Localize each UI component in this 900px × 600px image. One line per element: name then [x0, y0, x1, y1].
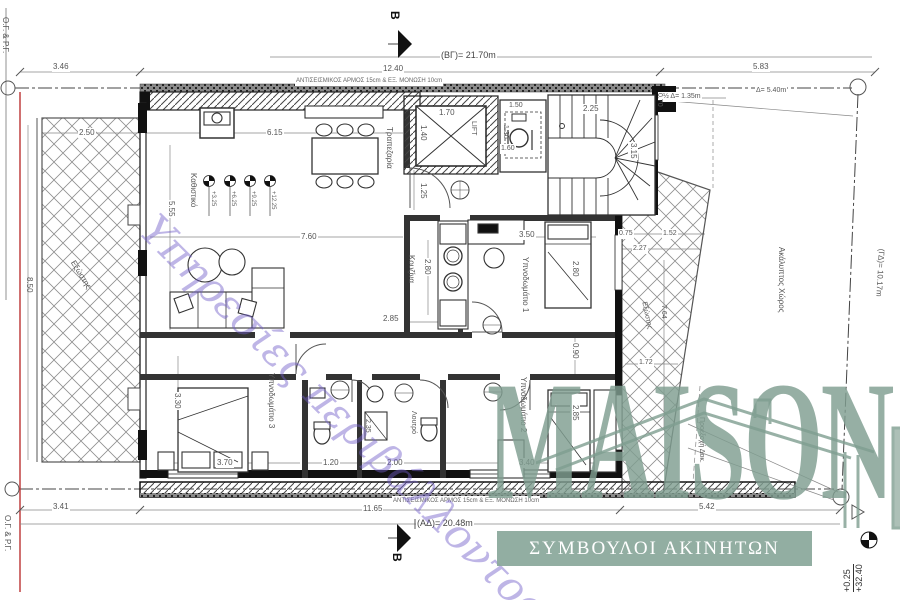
- label-uncovered-space: Ακάλυπτος Χώρος: [776, 246, 786, 314]
- staircase: [548, 95, 655, 215]
- dim-delta-540: Δ= 5.40m: [755, 86, 787, 96]
- boundary-label-og-rg-top: Ο.Γ. & Ρ.Γ.: [0, 16, 10, 54]
- floorplan-stage: Ο.Γ. & Ρ.Γ. 3.46 Β (ΒΓ)= 21.70m 12.40 ΑΝ…: [0, 0, 900, 600]
- dim-lift-w: 1.70: [438, 108, 456, 118]
- benchmark-level-absolute: +32.40: [854, 564, 865, 592]
- dim-bed1-h: 2.80: [570, 260, 580, 278]
- dim-top-c: 5.83: [752, 62, 770, 72]
- dim-kitchen-d: 2.80: [422, 258, 432, 276]
- room-label-dining: Τραπεζαρία: [384, 126, 394, 170]
- dim-wc-d: 1.60: [500, 144, 516, 154]
- dim-bottom-b: 11.65: [362, 504, 383, 514]
- dim-wc-h: 1.30: [500, 124, 510, 140]
- room-label-bath: Λουτρό: [408, 410, 418, 435]
- dim-stair-w: 2.25: [582, 104, 600, 114]
- benchmark-level-relative: +0.25: [842, 564, 854, 592]
- section-marker-bottom: Β: [392, 552, 402, 563]
- dim-bed3-w: 3.70: [216, 458, 234, 468]
- maison-tagline-band: ΣΥΜΒΟΥΛΟΙ ΑΚΙΝΗΤΩΝ: [497, 531, 812, 566]
- room-label-bedroom1: Υπνοδωμάτιο 1: [520, 256, 530, 313]
- dim-living-w: 6.15: [266, 128, 284, 138]
- level-label-4: +12.25: [268, 190, 278, 211]
- boundary-label-og-rg-bottom: Ο.Γ. & Ρ.Γ.: [2, 514, 12, 552]
- section-marker-top: Β: [390, 10, 400, 21]
- dim-top-a: 3.46: [52, 62, 70, 72]
- maison-logo-text: MAISON: [487, 356, 892, 526]
- dim-top-b: 12.40: [382, 64, 404, 74]
- dim-wc-w: 1.50: [508, 101, 524, 111]
- joint-note-top: ΑΝΤΙΣΕΙΣΜΙΚΟΣ ΑΡΜΟΣ 15cm & ΕΞ. ΜΟΝΩΣΗ 10…: [295, 76, 443, 86]
- dim-half-delta: ½ Δ= 1.35m: [662, 92, 702, 102]
- dim-bottom-a: 3.41: [52, 502, 70, 512]
- dim-left-h: 8.50: [24, 276, 34, 294]
- dim-bed1-w: 3.50: [518, 230, 536, 240]
- dim-right-d: 7.64: [658, 304, 668, 320]
- dim-bed3-h: 3.30: [172, 392, 182, 410]
- dim-stair-h: 3.15: [628, 142, 638, 160]
- dim-living-w2: 7.60: [300, 232, 318, 242]
- dim-off-top: 0.70: [654, 92, 664, 108]
- dim-balcony-w: 2.50: [78, 128, 96, 138]
- dim-entry: 1.25: [418, 182, 428, 200]
- dim-right-c: 2.27: [632, 244, 648, 254]
- balcony-left: [37, 118, 140, 462]
- dim-right-b: 1.52: [662, 229, 678, 239]
- room-label-lift: LIFT: [468, 120, 478, 136]
- dim-kitchen-w: 2.85: [382, 314, 400, 324]
- dim-wc2-w: 1.20: [322, 458, 340, 468]
- dim-right-a: 0.75: [618, 229, 634, 239]
- level-label-2: +6.25: [228, 190, 238, 207]
- level-markers: [331, 181, 502, 402]
- level-label-3: +9.25: [248, 190, 258, 207]
- dim-lift-h: 1.40: [418, 124, 428, 142]
- room-label-living: Καθιστικό: [188, 172, 198, 208]
- dim-bg-total: (ΒΓ)= 21.70m: [440, 50, 497, 60]
- level-label-1: +3.25: [208, 190, 218, 207]
- survey-benchmark-labels: +0.25 +32.40: [842, 564, 865, 592]
- room-label-kitchen: Κουζίνα: [406, 254, 416, 284]
